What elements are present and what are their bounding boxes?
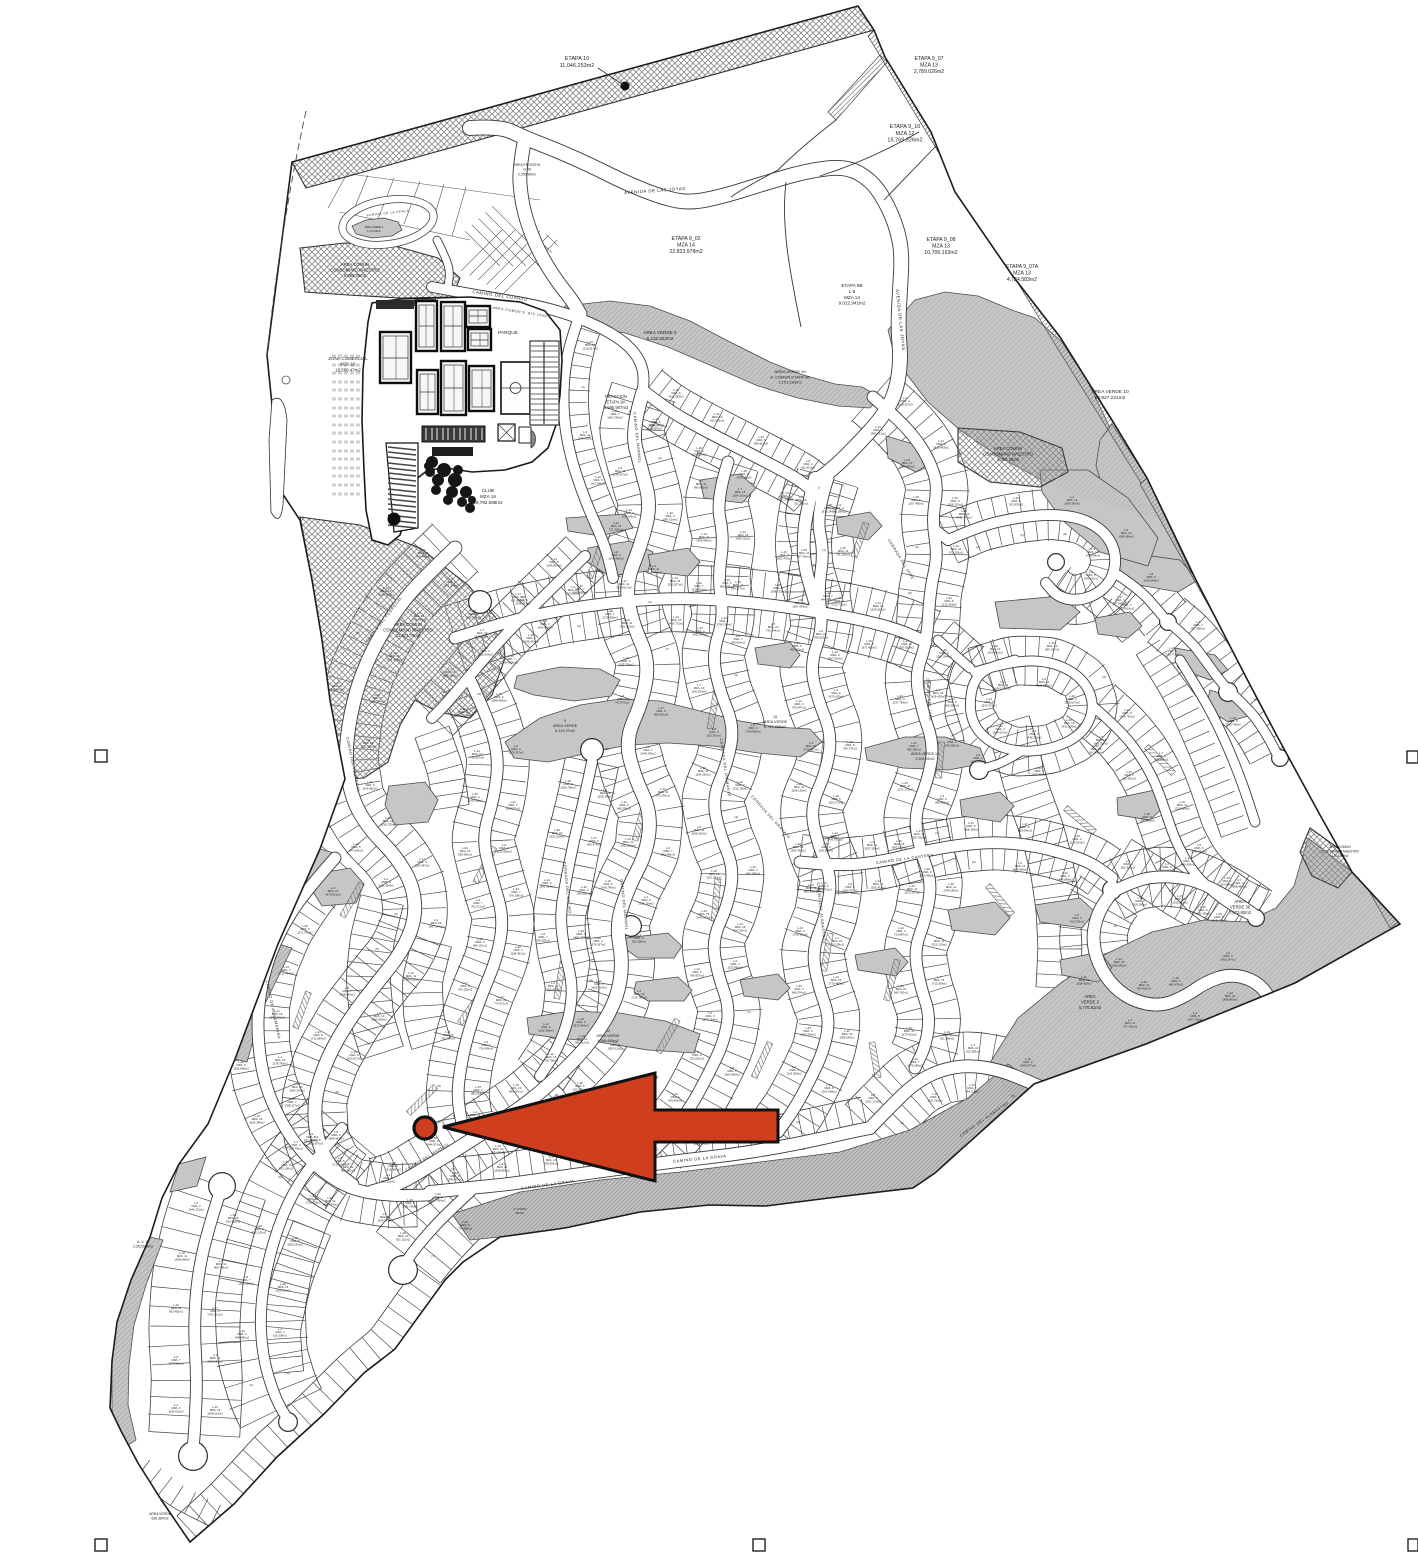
svg-text:(6): (6) <box>796 1120 799 1124</box>
svg-text:PARQUE: PARQUE <box>498 330 518 336</box>
svg-text:(1): (1) <box>747 1010 750 1014</box>
svg-text:(8): (8) <box>356 631 359 635</box>
svg-text:(6): (6) <box>278 1175 281 1179</box>
svg-text:(2): (2) <box>900 1121 903 1125</box>
svg-text:(4): (4) <box>734 815 737 819</box>
svg-text:(8): (8) <box>335 1090 338 1094</box>
svg-text:(5): (5) <box>375 947 378 951</box>
svg-text:(5): (5) <box>477 692 480 696</box>
svg-text:(3): (3) <box>734 673 737 677</box>
svg-text:AREA VERDE 55,132.622m2: AREA VERDE 55,132.622m2 <box>643 330 677 341</box>
svg-text:(2): (2) <box>1020 533 1023 537</box>
svg-text:(3): (3) <box>648 600 651 604</box>
svg-text:(8): (8) <box>437 1084 440 1088</box>
svg-text:(3): (3) <box>249 1383 252 1387</box>
svg-text:ETAPA 1011,046.253m2: ETAPA 1011,046.253m2 <box>560 56 595 69</box>
svg-text:(8): (8) <box>1063 532 1066 536</box>
svg-text:(7): (7) <box>431 1254 434 1258</box>
svg-text:(4): (4) <box>286 1371 289 1375</box>
svg-text:AREA VERDE636.384m2: AREA VERDE636.384m2 <box>149 1512 171 1521</box>
svg-text:(7): (7) <box>665 647 668 651</box>
svg-text:(4): (4) <box>935 831 938 835</box>
svg-text:(1): (1) <box>976 545 979 549</box>
svg-text:(4): (4) <box>915 545 918 549</box>
svg-text:(3): (3) <box>1113 924 1116 928</box>
svg-text:FRACCIONETAPA 9A3,595.907m2: FRACCIONETAPA 9A3,595.907m2 <box>604 394 629 410</box>
svg-text:(1): (1) <box>451 1167 454 1171</box>
svg-text:(2): (2) <box>589 978 592 982</box>
svg-text:(3): (3) <box>1102 675 1105 679</box>
svg-text:(1): (1) <box>822 548 825 552</box>
svg-text:(5): (5) <box>605 747 608 751</box>
svg-text:(2): (2) <box>658 456 661 460</box>
svg-text:(6): (6) <box>972 860 975 864</box>
svg-text:(5): (5) <box>1011 1094 1014 1098</box>
svg-text:(1): (1) <box>581 385 584 389</box>
svg-text:(6): (6) <box>577 624 580 628</box>
svg-text:(8): (8) <box>908 591 911 595</box>
svg-text:(5): (5) <box>394 912 397 916</box>
